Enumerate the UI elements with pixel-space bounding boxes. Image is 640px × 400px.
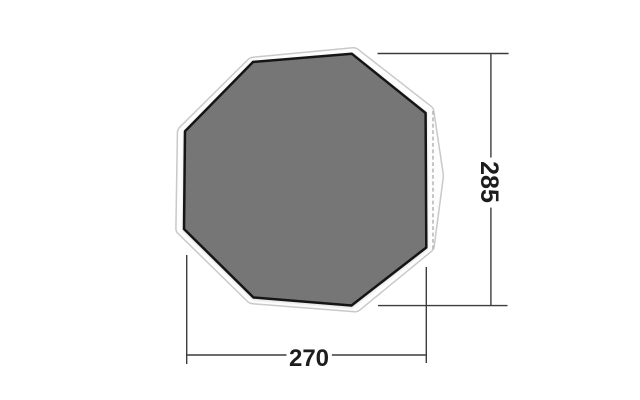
svg-text:270: 270: [289, 345, 329, 372]
svg-text:285: 285: [475, 161, 503, 203]
